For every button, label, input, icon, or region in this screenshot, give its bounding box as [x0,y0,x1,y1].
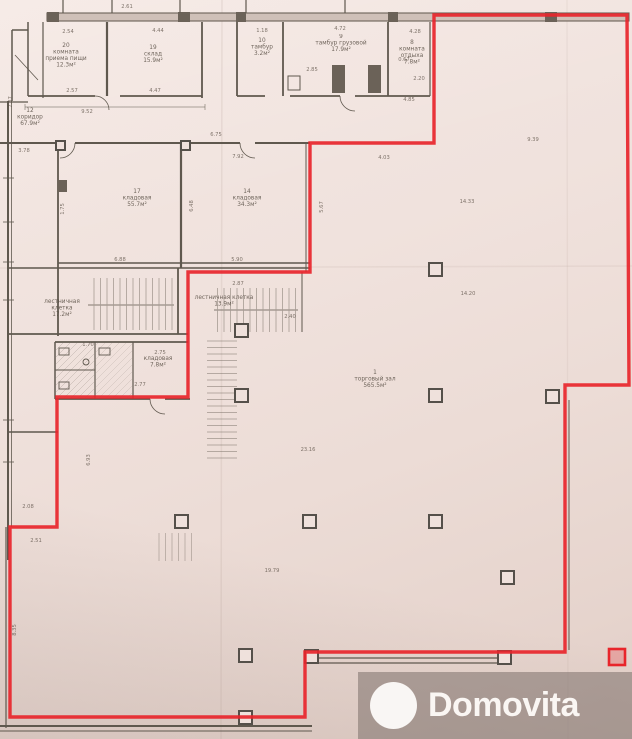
dim-label: 2.61 [121,4,133,10]
dim-label: 6.48 [189,200,195,212]
room-name: кладовая [233,196,262,202]
dim-label: 2.20 [413,76,425,82]
room-name: коридор [17,115,43,121]
dim-label: 7.92 [232,154,244,160]
floor-plan: 20 комната приема пищи 12.3м² 19 склад 1… [0,0,632,739]
dim-label: 0.67 [398,57,410,63]
room-name: приема пищи [45,56,87,62]
room-name: комната [53,50,79,56]
room-name: склад [144,52,162,58]
dim-label: 2.51 [30,538,42,544]
dim-label: 14.33 [460,199,475,205]
room-name: тамбур [251,45,273,51]
room-name: торговый зал [354,376,395,383]
dim-label: 9.39 [527,137,539,143]
room-area: 7.8м² [150,362,166,369]
room-number: 1 [373,370,377,376]
room-number: 19 [149,45,157,51]
room-name: кладовая [144,356,173,362]
dim-label: 2.75 [154,350,166,356]
room-area: 17.9м² [331,46,351,53]
dim-label: 6.75 [210,132,222,138]
room-number: 10 [258,38,266,44]
dim-label: 9.52 [81,109,93,115]
dim-label: 2.40 [284,314,296,320]
room-name: тамбур грузовой [315,40,367,47]
dim-label: 8.35 [12,624,18,636]
dim-label: 2.77 [134,382,146,388]
room-area: 67.9м² [20,120,40,127]
dim-label: 6.93 [86,454,92,466]
dim-label: 2.08 [22,504,34,510]
dim-label: 1.70 [82,342,94,348]
floor-plan-photo: 20 комната приема пищи 12.3м² 19 склад 1… [0,0,632,739]
dim-label: 19.79 [265,568,280,574]
dim-label: 4.85 [403,97,415,103]
room-name: клетка [51,306,73,312]
dim-label: 2.85 [306,67,318,73]
watermark-brand: Domovita [428,686,579,725]
dim-label: 4.03 [378,155,390,161]
dim-label: 1.75 [60,203,66,215]
dim-label: 1.18 [256,28,268,34]
watermark-dot-icon [370,682,417,729]
dim-label: 6.88 [114,257,126,263]
dim-label: 14.20 [461,291,476,297]
dim-label: 2.57 [66,88,78,94]
room-area: 17.2м² [52,311,72,318]
dim-label: 2.54 [62,29,74,35]
room-number: 9 [339,34,343,40]
columns [56,141,559,724]
room-number: 14 [243,189,251,195]
watermark-band: Domovita [358,672,632,739]
room-name: лестничная [44,299,80,305]
room-area: 13.9м² [214,301,234,308]
room-name: кладовая [123,196,152,202]
room-number: 17 [133,189,141,195]
dim-label: 23.16 [301,447,316,453]
dim-label: 4.47 [149,88,161,94]
room-area: 565.5м² [363,382,386,389]
dim-label: 5.67 [319,201,325,213]
room-area: 34.3м² [237,201,257,208]
room-area: 15.9м² [143,57,163,64]
room-area: 3.2м² [254,50,270,57]
dim-label: 4.28 [409,29,421,35]
dim-label: 4.44 [152,28,164,34]
room-name: лестничная клетка [195,295,254,301]
dim-label: 5.90 [231,257,243,263]
room-number: 20 [62,43,70,49]
room-number: 8 [410,40,414,46]
room-number: 12 [26,108,34,114]
room-area: 12.3м² [56,62,76,69]
walls [0,0,629,731]
dim-label: 2.87 [232,281,244,287]
red-column-marker [609,649,625,665]
dim-label: 7.87 [8,96,14,108]
room-name: комната [399,47,425,53]
dim-label: 3.78 [18,148,30,154]
room-area: 55.7м² [127,201,147,208]
dim-label: 4.72 [334,26,346,32]
